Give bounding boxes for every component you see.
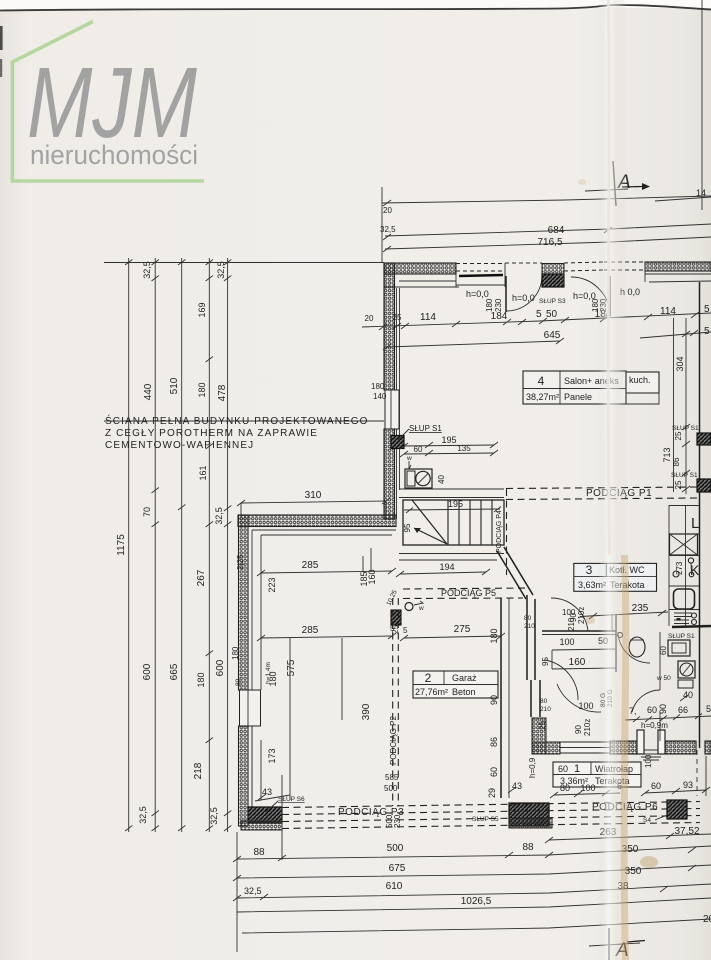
svg-text:80: 80	[540, 698, 548, 705]
svg-text:SŁUP S1: SŁUP S1	[672, 425, 699, 432]
svg-text:194: 194	[439, 562, 454, 572]
svg-text:25: 25	[674, 431, 683, 440]
svg-text:nieruchomości: nieruchomości	[30, 140, 198, 170]
svg-text:500: 500	[387, 843, 404, 854]
svg-text:210: 210	[524, 623, 535, 630]
svg-text:h=0,0: h=0,0	[512, 293, 535, 303]
svg-text:2: 2	[425, 671, 432, 685]
svg-text:510: 510	[169, 377, 180, 394]
svg-text:32,5: 32,5	[380, 225, 396, 234]
svg-text:60: 60	[558, 764, 568, 774]
svg-text:PODCIĄG P5: PODCIĄG P5	[441, 588, 496, 598]
svg-text:SŁUP S5: SŁUP S5	[472, 816, 499, 823]
svg-text:88: 88	[522, 842, 534, 853]
svg-text:575: 575	[286, 659, 297, 676]
svg-text:PODCIĄG P2: PODCIĄG P2	[389, 716, 398, 765]
svg-text:2|25: 2|25	[236, 554, 245, 570]
svg-text:3: 3	[586, 563, 593, 577]
svg-text:100: 100	[644, 754, 653, 768]
svg-text:95: 95	[403, 523, 412, 532]
svg-text:600: 600	[142, 663, 153, 680]
svg-text:L: L	[691, 515, 699, 532]
svg-text:114: 114	[660, 306, 676, 317]
svg-text:180: 180	[485, 298, 494, 312]
svg-text:478: 478	[217, 384, 228, 401]
svg-text:390: 390	[361, 703, 372, 720]
svg-text:161: 161	[198, 465, 208, 480]
svg-text:32,5: 32,5	[244, 886, 262, 896]
svg-text:Garaż: Garaż	[452, 673, 477, 683]
svg-text:230: 230	[494, 298, 503, 312]
svg-text:100: 100	[580, 783, 595, 793]
svg-text:4: 4	[538, 374, 545, 388]
svg-text:Panele: Panele	[564, 392, 592, 402]
svg-text:1: 1	[574, 763, 580, 775]
svg-text:h=0,9m: h=0,9m	[641, 721, 668, 730]
svg-text:665: 665	[169, 663, 180, 680]
svg-text:kuch.: kuch.	[629, 375, 651, 385]
svg-text:285: 285	[302, 560, 319, 571]
svg-text:235: 235	[632, 603, 649, 614]
svg-text:80: 80	[560, 783, 570, 793]
svg-text:600: 600	[215, 659, 226, 676]
svg-text:SŁUP S1: SŁUP S1	[671, 472, 698, 479]
svg-text:267: 267	[196, 569, 207, 586]
svg-text:90: 90	[489, 695, 499, 705]
svg-text:32,5: 32,5	[138, 806, 148, 824]
svg-text:173: 173	[267, 748, 277, 763]
svg-text:210z: 210z	[583, 719, 592, 736]
svg-text:20: 20	[365, 314, 374, 323]
svg-text:29: 29	[487, 788, 497, 798]
svg-text:PODCIĄG P3: PODCIĄG P3	[338, 807, 404, 818]
svg-text:h=0,9: h=0,9	[528, 757, 537, 778]
svg-text:5: 5	[536, 309, 542, 320]
svg-text:40: 40	[437, 475, 446, 484]
svg-text:304: 304	[675, 356, 685, 371]
svg-text:88: 88	[253, 847, 265, 858]
svg-text:310: 310	[305, 490, 322, 501]
svg-text:180: 180	[371, 382, 385, 391]
svg-text:610: 610	[386, 881, 403, 892]
svg-text:275: 275	[454, 624, 471, 635]
svg-text:40: 40	[683, 690, 693, 700]
svg-text:180: 180	[197, 382, 207, 397]
svg-text:86: 86	[672, 457, 681, 466]
svg-text:5: 5	[704, 304, 710, 315]
svg-text:135: 135	[457, 444, 471, 453]
svg-text:169: 169	[197, 302, 207, 317]
svg-text:100: 100	[578, 701, 593, 711]
svg-text:100: 100	[559, 637, 574, 647]
svg-text:37,52: 37,52	[674, 826, 699, 837]
svg-text:285: 285	[302, 625, 319, 636]
svg-text:440: 440	[143, 383, 154, 400]
svg-text:675: 675	[389, 863, 406, 874]
svg-text:h=0,0: h=0,0	[466, 289, 489, 299]
svg-text:Beton: Beton	[452, 687, 476, 697]
svg-text:50: 50	[546, 309, 558, 320]
svg-text:60: 60	[651, 781, 661, 791]
svg-text:210: 210	[540, 706, 551, 713]
svg-text:S4: S4	[643, 817, 651, 824]
svg-text:SŁUP S1: SŁUP S1	[409, 424, 442, 433]
svg-text:160: 160	[367, 569, 377, 584]
svg-text:218: 218	[193, 762, 204, 779]
svg-text:14: 14	[696, 188, 706, 198]
svg-text:32,5: 32,5	[216, 261, 226, 279]
svg-text:585: 585	[385, 773, 399, 782]
svg-text:5: 5	[706, 704, 711, 714]
svg-text:7,: 7,	[629, 706, 637, 716]
svg-text:713: 713	[662, 447, 672, 462]
svg-text:SŁUP S3: SŁUP S3	[539, 298, 566, 305]
svg-text:43: 43	[512, 781, 522, 791]
svg-text:716,5: 716,5	[537, 237, 562, 248]
svg-text:90: 90	[658, 704, 668, 714]
svg-text:195: 195	[441, 435, 456, 445]
svg-text:CEMENTOWO-WAPIENNEJ: CEMENTOWO-WAPIENNEJ	[105, 440, 254, 451]
svg-text:86: 86	[489, 737, 499, 747]
svg-text:645: 645	[544, 330, 561, 341]
svg-text:25: 25	[674, 480, 683, 489]
svg-text:90: 90	[574, 725, 583, 734]
svg-text:25: 25	[538, 721, 547, 730]
svg-text:w: w	[406, 455, 412, 462]
svg-text:70: 70	[142, 507, 152, 517]
svg-text:PODCIĄG P4: PODCIĄG P4	[496, 510, 503, 553]
svg-text:180: 180	[489, 628, 499, 643]
svg-text:180: 180	[268, 671, 278, 686]
svg-text:66: 66	[678, 705, 688, 715]
svg-text:SŁUP S1: SŁUP S1	[668, 633, 695, 640]
svg-text:180: 180	[196, 672, 206, 687]
svg-text:ŚCIANA PEŁNA BUDYNKU PROJEKTOW: ŚCIANA PEŁNA BUDYNKU PROJEKTOWANEGO	[105, 414, 369, 427]
svg-text:684: 684	[548, 225, 565, 236]
svg-text:32,5: 32,5	[142, 261, 152, 279]
svg-text:w 50: w 50	[656, 675, 671, 682]
svg-text:93: 93	[683, 780, 693, 790]
svg-text:223: 223	[267, 577, 277, 592]
svg-text:27,76m²: 27,76m²	[415, 687, 448, 697]
svg-text:60: 60	[647, 705, 657, 715]
svg-text:180: 180	[231, 646, 240, 660]
svg-text:1026,5: 1026,5	[461, 896, 492, 907]
svg-text:80: 80	[235, 678, 242, 686]
svg-text:5: 5	[704, 326, 710, 337]
svg-text:Z CEGŁY POROTHERM NA ZAPRAWIE: Z CEGŁY POROTHERM NA ZAPRAWIE	[105, 428, 318, 439]
svg-text:273: 273	[675, 561, 684, 575]
svg-text:195: 195	[448, 499, 463, 509]
svg-text:60: 60	[414, 445, 423, 454]
svg-text:60: 60	[489, 767, 499, 777]
svg-text:32,5: 32,5	[209, 807, 219, 825]
svg-text:32,5: 32,5	[214, 507, 224, 525]
svg-text:20: 20	[383, 206, 392, 215]
svg-text:114: 114	[420, 312, 436, 323]
svg-text:38,27m²: 38,27m²	[526, 392, 559, 402]
svg-text:160: 160	[569, 657, 586, 668]
svg-text:20: 20	[703, 914, 711, 925]
svg-text:5: 5	[403, 626, 408, 635]
svg-text:80: 80	[524, 615, 532, 622]
svg-text:w: w	[418, 605, 424, 612]
svg-text:140: 140	[373, 392, 387, 401]
svg-text:210z: 210z	[577, 607, 586, 624]
svg-text:500: 500	[384, 784, 398, 793]
svg-text:1175: 1175	[116, 534, 127, 556]
